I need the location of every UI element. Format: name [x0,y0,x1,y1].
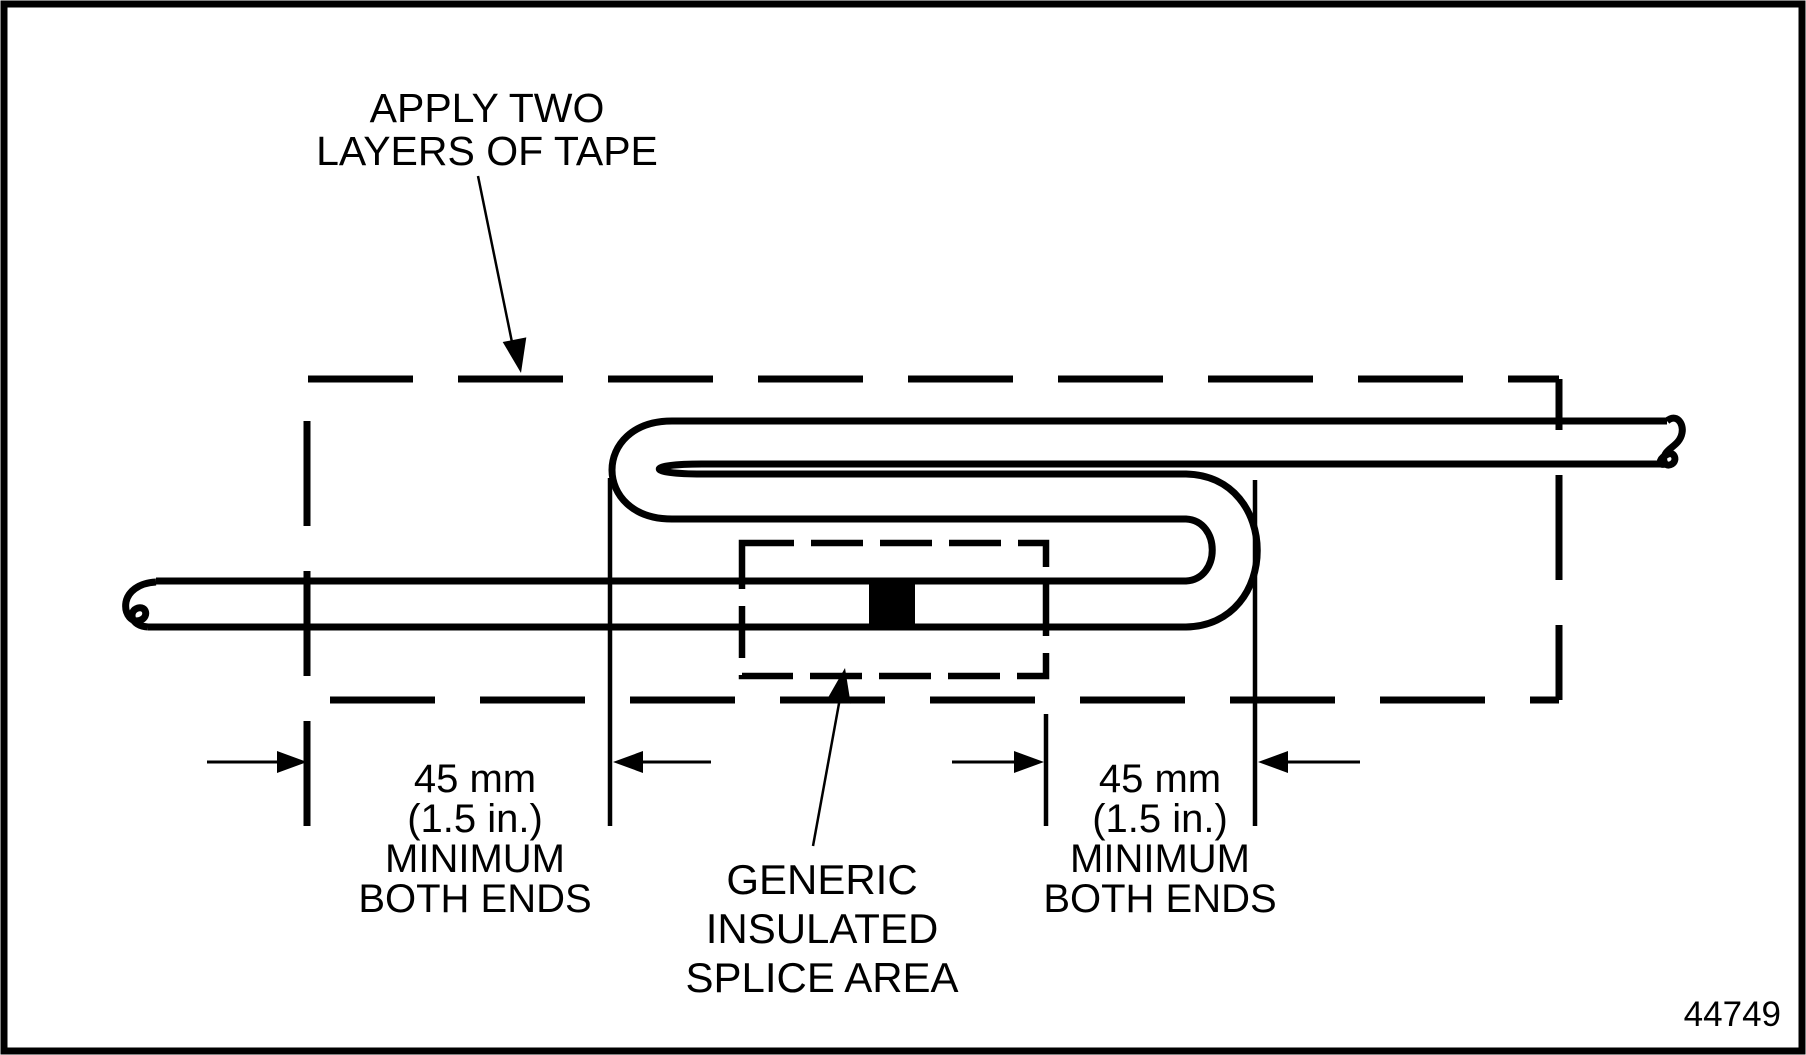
left-dimension-note-line1: MINIMUM [385,837,565,881]
splice-tape-diagram: APPLY TWO LAYERS OF TAPE 45 mm (1.5 in.)… [0,0,1806,1055]
apply-tape-label-line2: LAYERS OF TAPE [316,128,658,174]
splice-block [869,584,915,629]
wire-break-left [126,582,156,627]
left-dimension-value-inches: (1.5 in.) [407,797,543,841]
figure-number: 44749 [1684,995,1781,1034]
wire-edge-outer [156,421,1667,581]
wire-break-right [1660,418,1682,465]
arrowhead-left-icon [613,751,643,773]
splice-label-leader [813,668,851,846]
tape-label-leader [478,176,526,373]
right-dimension-note-line2: BOTH ENDS [1043,877,1276,921]
figure-canvas: APPLY TWO LAYERS OF TAPE 45 mm (1.5 in.)… [0,0,1806,1055]
splice-label-line1: GENERIC [726,856,917,903]
arrowhead-left-icon [1258,751,1288,773]
leader-line [813,698,840,846]
arrowhead-down-icon [503,337,527,373]
arrowhead-right-icon [277,751,307,773]
splice-label-line2: INSULATED [706,905,939,952]
right-dimension-note-line1: MINIMUM [1070,837,1250,881]
splice-label-line3: SPLICE AREA [685,954,958,1001]
right-dimension-value-inches: (1.5 in.) [1092,797,1228,841]
leader-line [478,176,514,352]
apply-tape-label-line1: APPLY TWO [370,85,605,131]
left-dimension-value: 45 mm [414,757,536,801]
arrowhead-right-icon [1014,751,1044,773]
right-dimension-value: 45 mm [1099,757,1221,801]
left-dimension-note-line2: BOTH ENDS [358,877,591,921]
